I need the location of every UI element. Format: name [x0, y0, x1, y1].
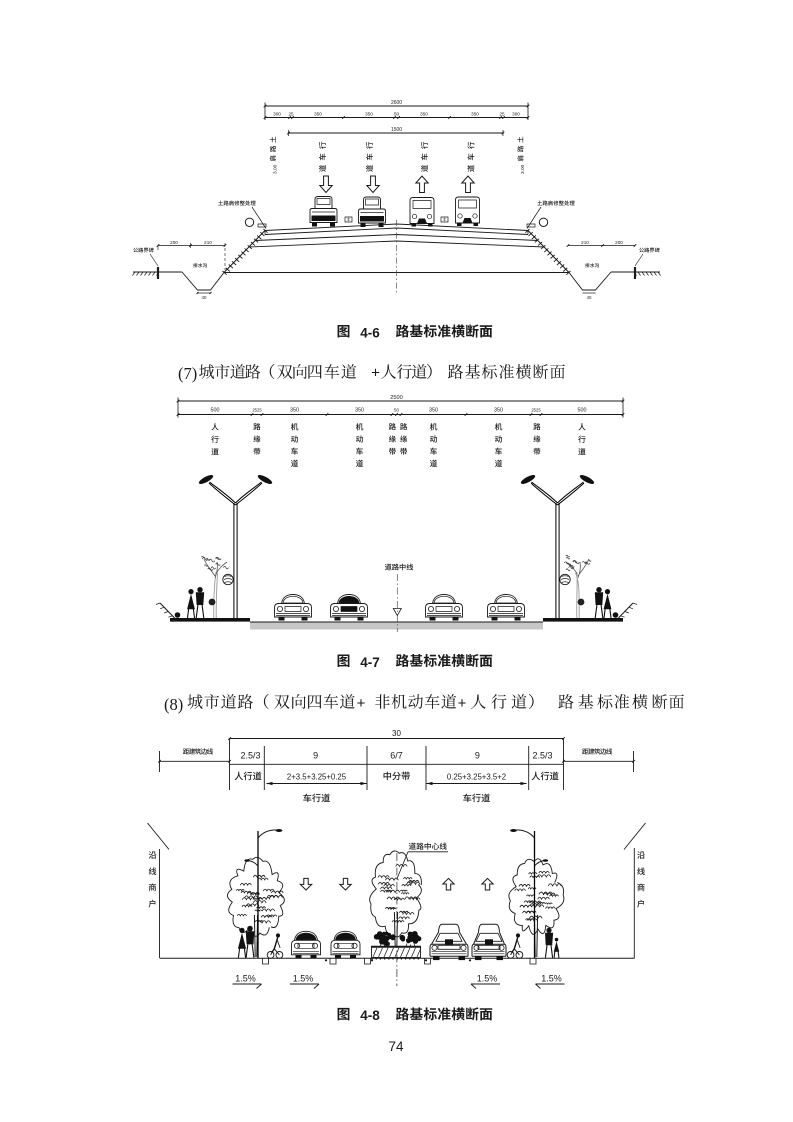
svg-text:1.5%: 1.5%: [235, 974, 256, 984]
svg-text:300: 300: [273, 112, 281, 117]
svg-text:350: 350: [355, 408, 364, 414]
svg-text:+: +: [458, 695, 467, 712]
svg-text:2525: 2525: [531, 408, 541, 413]
svg-text:350: 350: [314, 112, 322, 117]
svg-text:0.25+3.25+3.5+2: 0.25+3.25+3.5+2: [447, 773, 506, 782]
svg-text:40: 40: [587, 295, 592, 300]
svg-text:1.5%: 1.5%: [477, 974, 498, 984]
svg-text:4-7: 4-7: [360, 655, 380, 670]
svg-text:1500: 1500: [391, 127, 402, 133]
svg-text:210: 210: [204, 240, 212, 245]
svg-text:350: 350: [494, 408, 503, 414]
svg-text:2+3.5+3.25+0.25: 2+3.5+3.25+0.25: [287, 773, 347, 782]
svg-text:3.00: 3.00: [520, 164, 526, 174]
svg-text:350: 350: [365, 112, 373, 117]
svg-text:1.5%: 1.5%: [293, 974, 314, 984]
svg-text:50: 50: [394, 112, 400, 117]
svg-text:210: 210: [581, 240, 589, 245]
svg-text:200: 200: [615, 240, 623, 245]
svg-text:200: 200: [170, 240, 178, 245]
svg-text:(8): (8): [164, 695, 183, 714]
svg-text:74: 74: [388, 1039, 404, 1054]
svg-text:500: 500: [211, 408, 220, 414]
svg-text:1.5%: 1.5%: [541, 974, 562, 984]
svg-text:4-6: 4-6: [360, 325, 380, 340]
svg-text:3.00: 3.00: [272, 164, 278, 174]
svg-text:(7): (7): [178, 364, 197, 383]
svg-text:2.5/3: 2.5/3: [240, 751, 260, 761]
svg-text:350: 350: [471, 112, 479, 117]
svg-text:300: 300: [512, 112, 520, 117]
svg-text:2525: 2525: [252, 408, 262, 413]
svg-text:30: 30: [392, 729, 401, 738]
svg-text:40: 40: [202, 295, 207, 300]
svg-text:25: 25: [499, 112, 505, 117]
svg-text:9: 9: [313, 751, 318, 761]
svg-text:4-8: 4-8: [360, 1008, 380, 1023]
svg-text:+: +: [357, 695, 366, 712]
svg-text:2.5/3: 2.5/3: [532, 751, 552, 761]
svg-text:350: 350: [420, 112, 428, 117]
svg-text:50: 50: [394, 408, 399, 413]
svg-text:6/7: 6/7: [390, 751, 403, 761]
svg-text:350: 350: [429, 408, 438, 414]
svg-text:25: 25: [288, 112, 294, 117]
svg-text:9: 9: [475, 751, 480, 761]
svg-text:500: 500: [578, 408, 587, 414]
svg-text:350: 350: [290, 408, 299, 414]
svg-text:+: +: [371, 365, 380, 382]
svg-text:2600: 2600: [391, 100, 402, 106]
svg-text:2500: 2500: [390, 395, 402, 401]
